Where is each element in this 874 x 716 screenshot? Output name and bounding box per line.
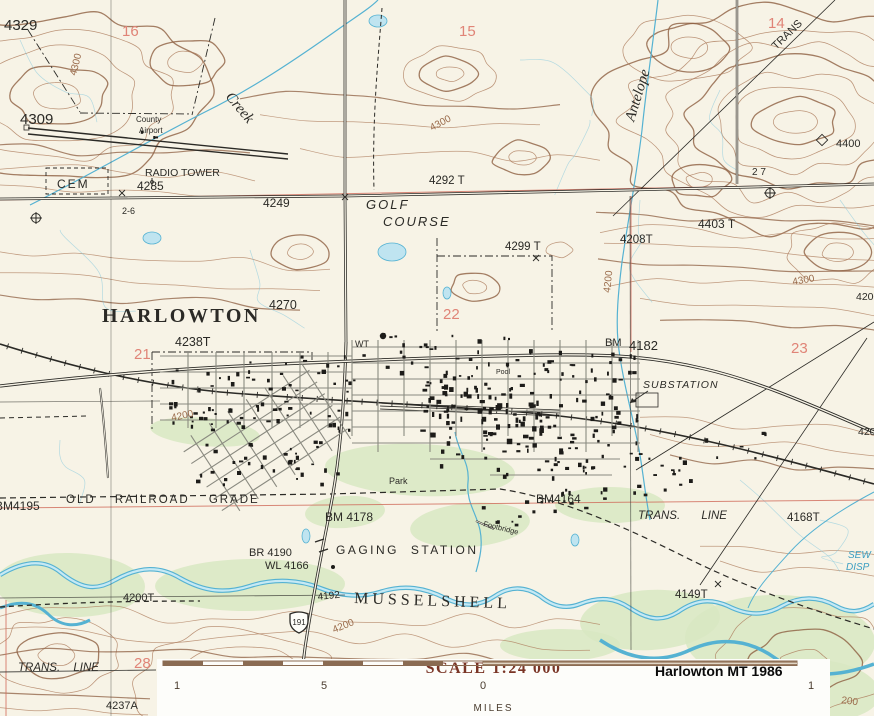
map-label-park: Park [389, 476, 408, 486]
map-label-22: 22 [443, 306, 460, 323]
map-label-creek: Creek [222, 89, 257, 127]
map-label-4299-t: 4299 T [505, 241, 541, 253]
map-label-bm4195: BM4195 [0, 499, 40, 513]
scale-bar [157, 659, 803, 669]
map-label-radio-tower: RADIO TOWER [145, 167, 220, 179]
topo-map-page: 191 4329164300Creek4309CountyAirport1543… [0, 0, 874, 716]
map-label-4249: 4249 [263, 196, 290, 210]
map-label-4200: 4200 [858, 426, 874, 438]
map-label-4149t: 4149T [675, 589, 708, 601]
map-label-21: 21 [134, 346, 151, 363]
map-label-4300: 4300 [792, 273, 816, 288]
map-label-antelope: Antelope [622, 67, 653, 124]
map-label-4400: 4400 [836, 138, 860, 150]
map-label-course: COURSE [383, 214, 451, 229]
scale-tick: 1 [174, 680, 180, 692]
map-label-substation: SUBSTATION [643, 379, 719, 391]
map-label-trans-line: TRANS. LINE [638, 510, 727, 522]
map-label-4168t: 4168T [787, 512, 820, 524]
map-label-16: 16 [122, 23, 139, 40]
us-route-191-shield: 191 [290, 612, 308, 633]
map-label-4192: 4192 [317, 590, 341, 603]
map-label-cem: CEM [57, 177, 90, 191]
map-label-4300: 4300 [428, 113, 453, 133]
map-label-4300: 4300 [68, 52, 84, 77]
map-label-pool: Pool [496, 369, 510, 376]
us-route-shield: 191 [290, 612, 308, 633]
map-label-airport: Airport [139, 126, 163, 135]
map-label-wl-4166: WL 4166 [265, 560, 309, 572]
map-label-4309: 4309 [20, 111, 53, 128]
map-label-disp: DISP [846, 562, 870, 573]
map-label-golf: GOLF [366, 197, 409, 212]
map-label-4329: 4329 [4, 17, 37, 34]
scale-tick: 5 [321, 680, 327, 692]
map-label-bm-4178: BM 4178 [325, 510, 373, 524]
map-label-4238t: 4238T [175, 335, 211, 349]
scale-overlay: SCALE 1:24 000 Harlowton MT 1986 1 5 0 1… [157, 659, 830, 716]
map-label-4200: 4200 [856, 291, 874, 303]
map-label-4237a: 4237A [106, 700, 138, 712]
map-label-trans-line: TRANS. LINE [18, 662, 99, 674]
map-label-bm: BM [605, 337, 622, 349]
svg-text:191: 191 [292, 618, 306, 627]
map-label-old-railroad-grade: OLD RAILROAD GRADE [66, 494, 260, 506]
map-label-4285: 4285 [137, 179, 164, 193]
map-label-2-6: 2-6 [122, 206, 135, 216]
map-label-4270: 4270 [269, 298, 297, 312]
map-label-gaging-station: GAGING STATION [336, 543, 479, 557]
map-label-br-4190: BR 4190 [249, 547, 292, 559]
map-label-4200: 4200 [331, 617, 356, 636]
scale-tick: 1 [808, 680, 814, 692]
map-label-28: 28 [134, 655, 151, 672]
map-label-4292-t: 4292 T [429, 175, 465, 187]
map-label-musselshell: MUSSELSHELL [354, 590, 511, 612]
map-label-wt: WT [355, 339, 369, 349]
map-label-county: County [136, 115, 161, 124]
scale-tick: 0 [480, 680, 486, 692]
map-label-23: 23 [791, 340, 808, 357]
topo-map-canvas[interactable]: 191 4329164300Creek4309CountyAirport1543… [0, 0, 874, 716]
scale-units: MILES [157, 703, 830, 714]
map-label-4200: 4200 [602, 270, 615, 294]
map-label-bm4164: BM4164 [536, 492, 581, 506]
map-label-15: 15 [459, 23, 476, 40]
map-label-14: 14 [768, 15, 785, 32]
map-label-harlowton: HARLOWTON [102, 305, 261, 327]
map-label-2-7: 2 7 [752, 167, 766, 178]
map-label-4200t: 4200T [123, 592, 154, 604]
map-label-4208t: 4208T [620, 234, 653, 246]
map-label-4182: 4182 [629, 338, 658, 353]
map-label-4403-t: 4403 T [698, 217, 736, 231]
map-label-sew: SEW [848, 550, 872, 561]
